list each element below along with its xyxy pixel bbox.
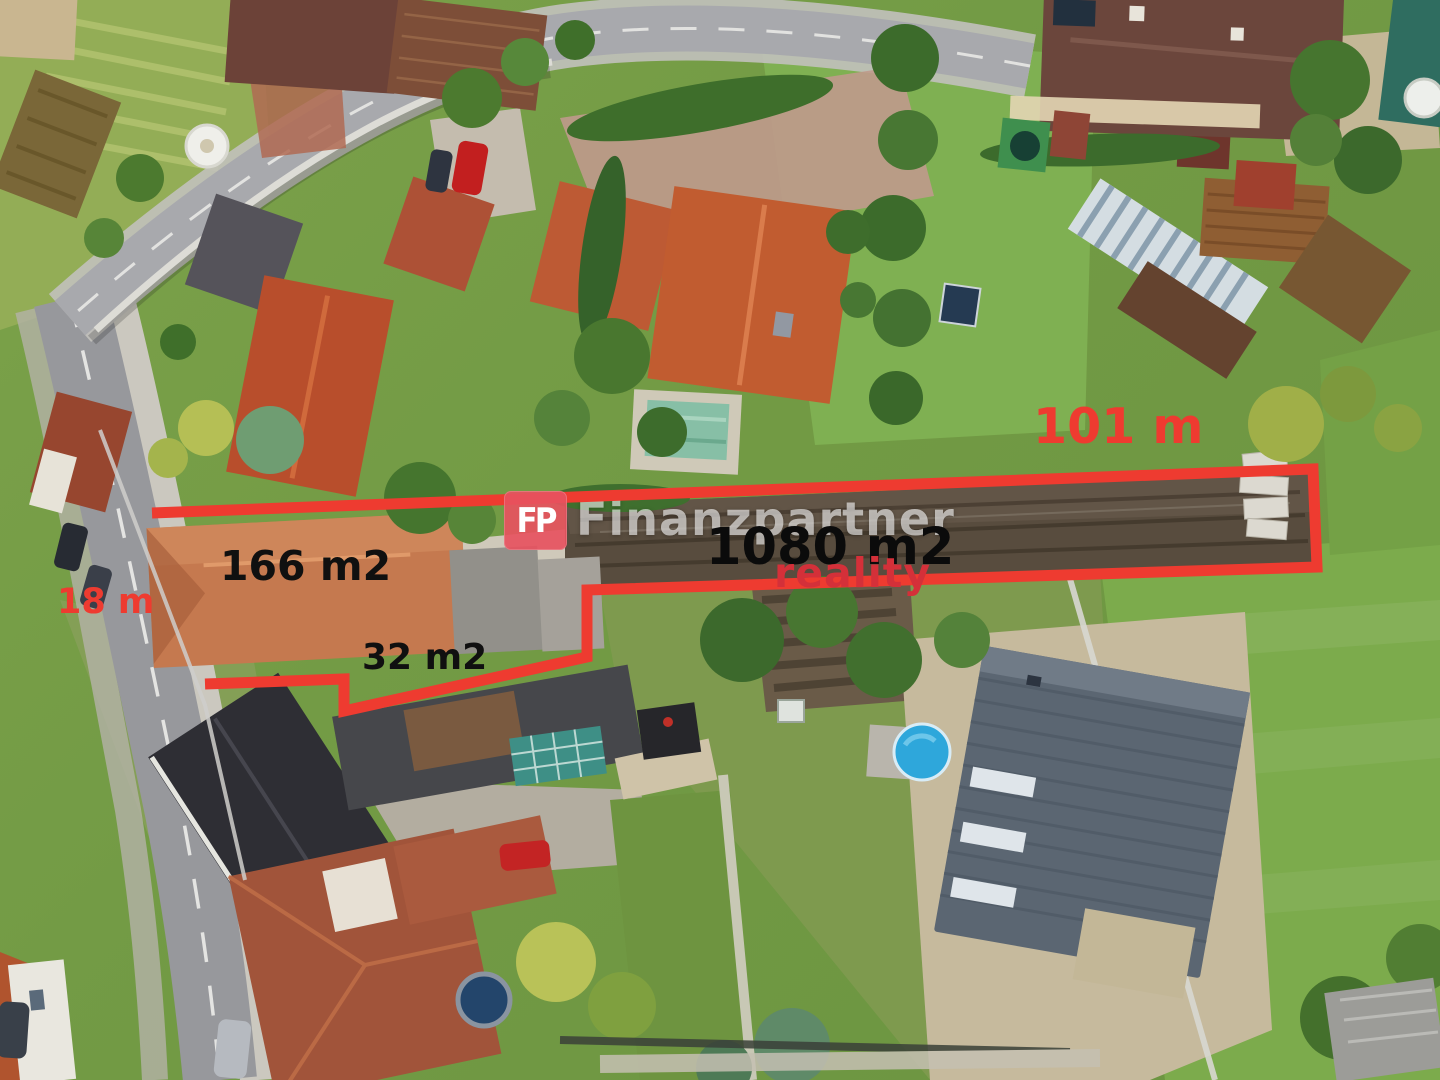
- house-roof-maroon: [225, 0, 402, 94]
- solar-shed: [940, 284, 981, 327]
- pool-round-blue: [894, 724, 950, 780]
- frontage-length-label: 18 m: [57, 585, 154, 620]
- aerial-photo: 18 m 101 m 166 m2 32 m2 1080 m2 Finanzpa…: [0, 0, 1440, 1080]
- watermark-division-text: reality: [774, 549, 931, 597]
- garden-shed-white: [778, 700, 804, 722]
- car-silver: [213, 1018, 252, 1079]
- house-roof-tan: [0, 0, 78, 60]
- round-tub: [458, 974, 510, 1026]
- building-teal-right: [1378, 0, 1440, 127]
- tarp-gray: [1324, 978, 1440, 1080]
- car-red-bottom: [499, 839, 552, 871]
- finanzpartner-logo: FP: [504, 491, 567, 550]
- main-house-area-label: 166 m2: [220, 546, 391, 587]
- outbuilding-area-label: 32 m2: [362, 640, 487, 676]
- car-dark-bottom: [0, 1001, 30, 1059]
- finanzpartner-logo-monogram: FP: [517, 501, 555, 540]
- plot-length-label: 101 m: [1033, 402, 1203, 451]
- house-roof-orange-big: [647, 186, 856, 404]
